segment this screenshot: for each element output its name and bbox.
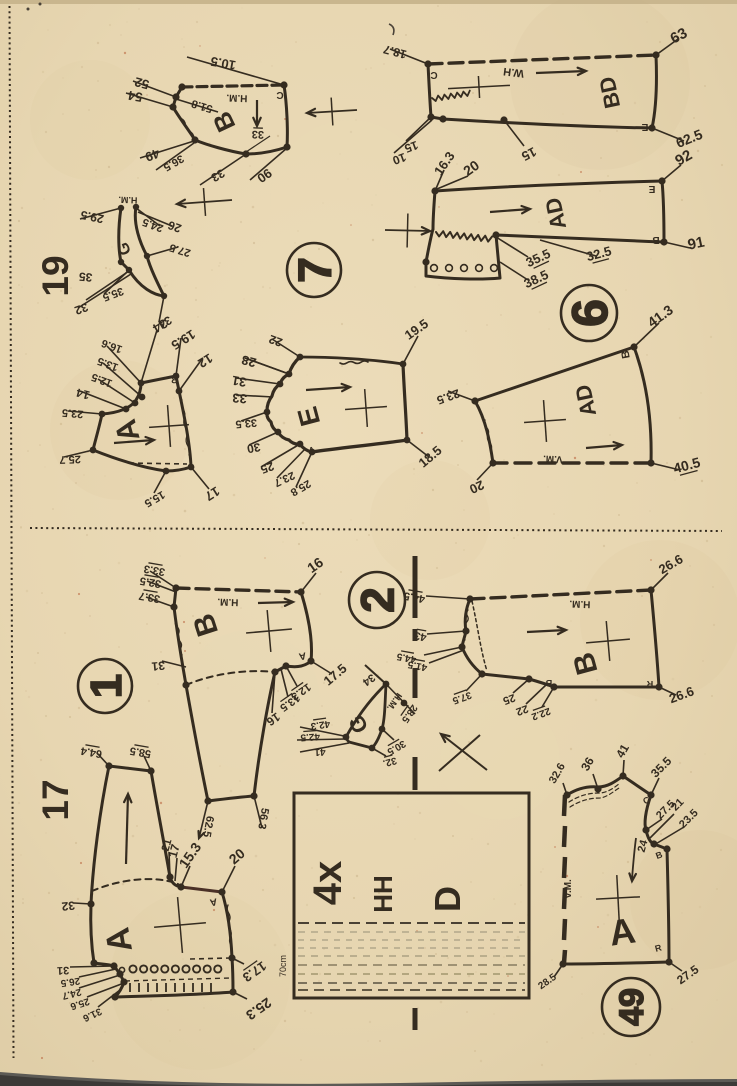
svg-text:H.M.: H.M. xyxy=(226,92,248,104)
svg-text:D: D xyxy=(427,886,468,912)
svg-text:17: 17 xyxy=(35,779,76,820)
svg-text:49: 49 xyxy=(613,988,651,1026)
svg-text:4x: 4x xyxy=(306,861,350,906)
svg-text:6: 6 xyxy=(562,299,618,327)
svg-text:23.5: 23.5 xyxy=(62,406,84,420)
svg-text:C: C xyxy=(430,69,437,80)
svg-text:25.7: 25.7 xyxy=(59,453,81,466)
svg-text:35: 35 xyxy=(78,269,93,284)
svg-text:E: E xyxy=(641,121,648,132)
svg-text:91: 91 xyxy=(686,234,706,254)
svg-text:V.M.: V.M. xyxy=(543,453,563,465)
svg-text:B: B xyxy=(652,234,659,245)
svg-text:B: B xyxy=(545,678,552,688)
svg-text:HH: HH xyxy=(368,875,398,913)
svg-text:R: R xyxy=(646,679,653,689)
svg-text:7: 7 xyxy=(289,257,341,283)
svg-text:41: 41 xyxy=(314,746,326,757)
svg-text:H.M.: H.M. xyxy=(217,596,239,608)
svg-text:31: 31 xyxy=(57,964,70,976)
svg-text:32: 32 xyxy=(61,898,76,913)
svg-text:1: 1 xyxy=(82,674,131,698)
svg-text:H.M.: H.M. xyxy=(118,195,137,206)
svg-text:30: 30 xyxy=(246,440,262,456)
svg-text:V.M.: V.M. xyxy=(563,879,574,899)
svg-text:33: 33 xyxy=(232,390,248,406)
svg-text:33: 33 xyxy=(252,128,265,140)
svg-text:19: 19 xyxy=(35,255,76,296)
svg-text:33.5: 33.5 xyxy=(235,416,257,430)
svg-text:31: 31 xyxy=(151,658,166,673)
svg-text:W.H: W.H xyxy=(503,65,525,79)
svg-text:C: C xyxy=(276,89,283,100)
svg-text:70cm: 70cm xyxy=(278,955,288,977)
svg-text:E: E xyxy=(648,183,655,194)
svg-text:42.5: 42.5 xyxy=(300,730,321,742)
svg-text:31: 31 xyxy=(231,373,248,390)
svg-text:2: 2 xyxy=(352,587,404,613)
svg-text:H.M.: H.M. xyxy=(569,598,591,610)
